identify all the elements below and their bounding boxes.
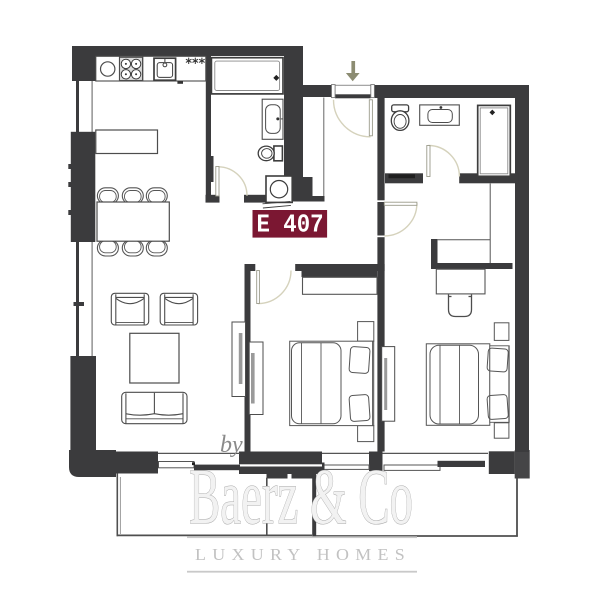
svg-text:E 407: E 407 bbox=[257, 210, 324, 240]
svg-text:LUXURY HOMES: LUXURY HOMES bbox=[195, 545, 411, 564]
svg-text:Baerz & Co: Baerz & Co bbox=[189, 454, 413, 541]
